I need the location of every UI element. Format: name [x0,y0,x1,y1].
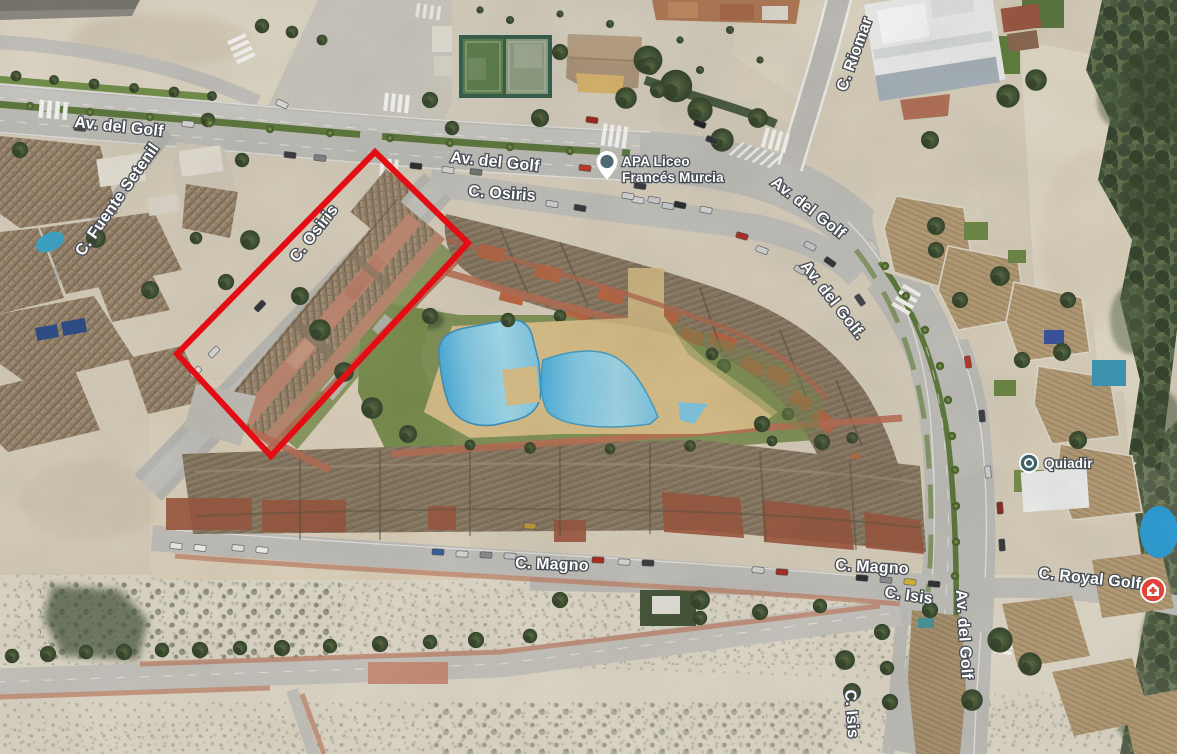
svg-text:C. Magno: C. Magno [515,555,589,575]
svg-text:Quiadir: Quiadir [1044,456,1093,471]
svg-text:Francés Murcia: Francés Murcia [622,170,724,185]
svg-text:C. Isis: C. Isis [841,689,861,739]
svg-text:APA Liceo: APA Liceo [622,154,690,169]
